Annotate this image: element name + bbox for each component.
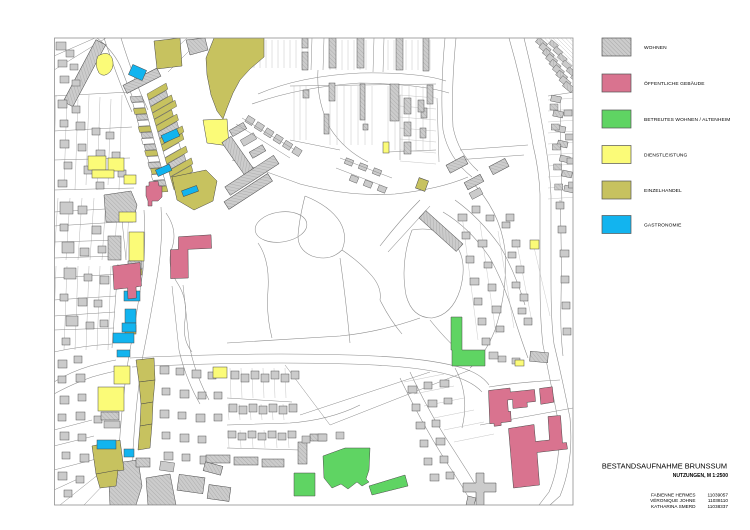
svg-text:BETREUTES WOHNEN / ALTENHEIM: BETREUTES WOHNEN / ALTENHEIM <box>644 117 730 123</box>
svg-text:WOHNEN: WOHNEN <box>644 45 667 51</box>
svg-text:EINZELHANDEL: EINZELHANDEL <box>644 188 682 194</box>
svg-text:DIENSTLEISTUNG: DIENSTLEISTUNG <box>644 153 688 159</box>
svg-text:VÉRONIQUE JOHNE: VÉRONIQUE JOHNE <box>650 497 695 503</box>
svg-text:11039057: 11039057 <box>707 492 728 497</box>
svg-text:ÖFFENTLICHE GEBÄUDE: ÖFFENTLICHE GEBÄUDE <box>644 80 705 87</box>
svg-text:KATHARINA SMERD: KATHARINA SMERD <box>651 504 696 509</box>
svg-text:11038337: 11038337 <box>707 504 728 509</box>
svg-text:11038110: 11038110 <box>708 498 729 503</box>
svg-text:GASTRONOMIE: GASTRONOMIE <box>644 223 682 229</box>
svg-text:FABIENNE HERMES: FABIENNE HERMES <box>651 492 696 497</box>
svg-text:BESTANDSAUFNAHME BRUNSSUM: BESTANDSAUFNAHME BRUNSSUM <box>602 462 727 471</box>
svg-text:NUTZUNGEN, M 1:2500: NUTZUNGEN, M 1:2500 <box>673 473 729 479</box>
